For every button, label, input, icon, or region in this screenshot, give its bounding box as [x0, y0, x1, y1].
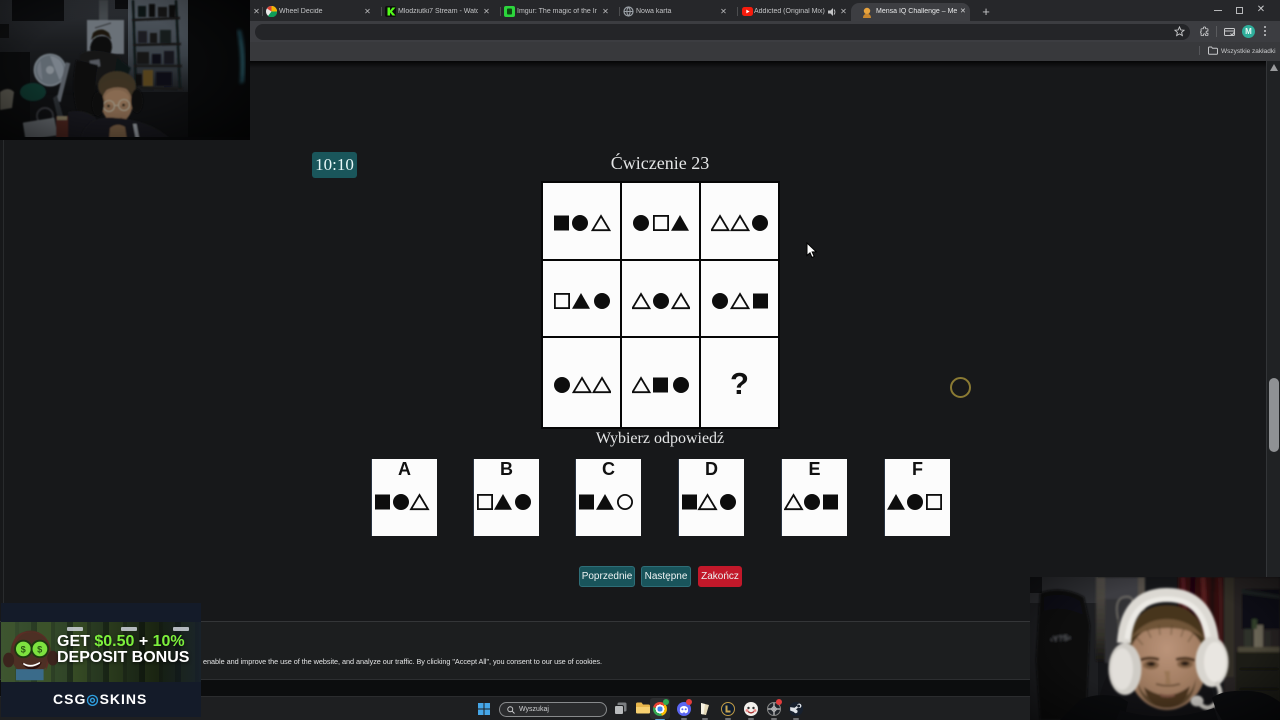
svg-text:$: $ — [21, 645, 26, 655]
svg-text:$: $ — [37, 645, 42, 655]
